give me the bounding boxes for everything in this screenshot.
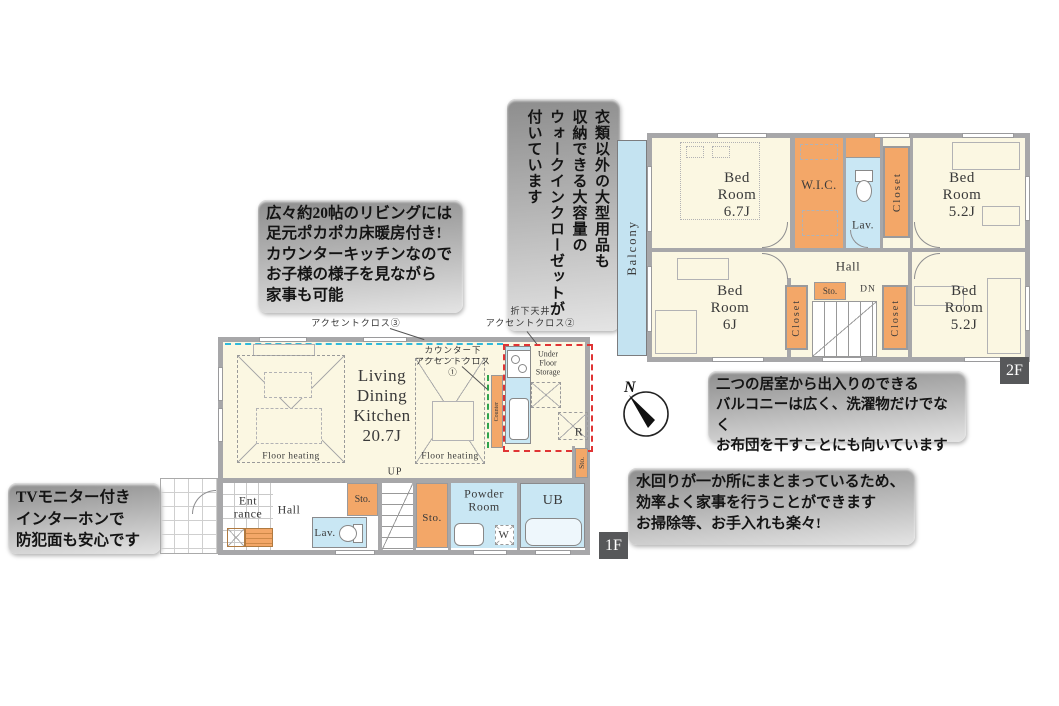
ldk-block: Living Dining Kitchen 20.7J Floor heatin… [218, 337, 590, 483]
balcony: Balcony [617, 140, 647, 356]
door-arc [914, 222, 940, 248]
closet-sw: Closet [785, 285, 808, 350]
stairs-diagonal [382, 483, 413, 550]
storage-2f: Sto. [814, 282, 846, 300]
window [535, 550, 571, 555]
under-floor-storage-box [531, 382, 561, 408]
callout-walk-in-closet: 衣類以外の大型用品も 収納できる大容量の ウォークインクローゼットが 付いていま… [507, 99, 620, 331]
callout-tv-monitor: TVモニター付き インターホンで 防犯面も安心です [8, 483, 161, 554]
refrigerator-box [558, 412, 588, 440]
bedroom-ne-label: Bed Room 5.2J [943, 170, 982, 220]
closet-top-label: Closet [891, 172, 903, 212]
toilet [856, 180, 872, 202]
shoe-cabinet [245, 528, 273, 547]
callout-balcony: 二つの居室から出入りのできる バルコニーは広く、洗濯物だけでなく お布団を干すこ… [708, 371, 966, 442]
dining-table [432, 401, 474, 441]
closet-se-label: Closet [890, 299, 901, 337]
storage-kitchen: Sto. [575, 448, 588, 478]
balcony-door [647, 266, 652, 332]
bedroom-se-label: Bed Room 5.2J [945, 283, 984, 333]
bed [987, 278, 1021, 354]
window [218, 367, 223, 401]
stairs-1f [382, 483, 413, 550]
wall [908, 252, 912, 357]
window [712, 357, 764, 362]
closet-se: Closet [882, 285, 908, 350]
pillow [686, 146, 704, 158]
window [259, 337, 307, 342]
floor1-lower-band: Ent rance Hall Sto. Lav. Sto. [218, 478, 590, 555]
floor-heating-left [237, 355, 345, 463]
lav-1f-label: Lav. [314, 527, 335, 539]
hanger-rod [802, 210, 838, 236]
toilet [339, 525, 357, 542]
wall [652, 248, 1025, 252]
bed [655, 310, 697, 354]
unit-bath-label: UB [543, 493, 563, 509]
floor-heating-right-label: Floor heating [421, 452, 478, 463]
porch [160, 478, 218, 554]
wic-label: W.I.C. [801, 178, 837, 192]
window [363, 337, 407, 342]
shoe-cabinet [227, 528, 245, 547]
stove [507, 350, 531, 378]
storage-hall: Sto. [347, 483, 378, 516]
desk [677, 258, 729, 280]
window [822, 357, 862, 362]
pillow [712, 146, 730, 158]
stairs-down-label: DN [860, 285, 876, 296]
compass: N [612, 374, 676, 440]
compass-north-label: N [623, 379, 637, 396]
burner [511, 355, 520, 364]
powder-room-label: Powder Room [464, 488, 504, 515]
floor-plan-page: 衣類以外の大型用品も 収納できる大容量の ウォークインクローゼットが 付いていま… [0, 0, 1059, 706]
hall-2f-label: Hall [836, 260, 860, 275]
bedroom-nw-label: Bed Room 6.7J [718, 170, 757, 220]
burner [518, 364, 527, 373]
back-door [335, 550, 375, 555]
table [264, 372, 312, 398]
lav-shelf [846, 138, 880, 158]
stairs-up-label: UP [388, 466, 403, 477]
bed [952, 142, 1020, 170]
door-arc [762, 253, 788, 279]
washbasin [454, 523, 484, 546]
compass-needle [629, 395, 655, 428]
window [962, 133, 1014, 138]
accent-cloth-1-label: カウンター下 アクセントクロス① [415, 345, 491, 378]
stairs-2f [812, 301, 877, 357]
accent-cloth-2-label: 折下天井 アクセントクロス② [478, 306, 583, 329]
floor1-plan: Living Dining Kitchen 20.7J Floor heatin… [218, 332, 590, 555]
walk-in-closet [795, 138, 843, 248]
bathtub [525, 518, 582, 546]
hanger-rod [800, 144, 838, 160]
accent-cloth-3-label: アクセントクロス③ [300, 318, 412, 330]
door-arc [762, 222, 788, 248]
bedroom-sw-label: Bed Room 6J [711, 283, 750, 333]
sink [509, 398, 529, 440]
sofa [256, 408, 322, 444]
stairs-diagonal [813, 302, 876, 356]
floor2-plan: Balcony Bed Room 6.7J W.I.C. [617, 133, 1030, 363]
desk [982, 206, 1020, 226]
closet-sw-label: Closet [791, 299, 802, 337]
washer-label: W [498, 529, 511, 541]
window [1025, 286, 1030, 331]
under-floor-storage-label: Under Floor Storage [536, 351, 560, 378]
wall [910, 138, 913, 248]
floor-heating-left-label: Floor heating [262, 452, 319, 463]
callout-utility: 水回りが一か所にまとまっているため、 効率よく家事を行うことができます お掃除等… [628, 468, 915, 545]
window [717, 133, 767, 138]
storage-2f-label: Sto. [823, 286, 837, 296]
window [1025, 176, 1030, 221]
balcony-door [647, 166, 652, 232]
hall-1f-label: Hall [278, 503, 301, 516]
closet-top: Closet [883, 146, 910, 238]
accent-cloth-1-line [487, 375, 489, 448]
storage-hall-label: Sto. [355, 494, 371, 505]
callout-living: 広々約20帖のリビングには 足元ポカポカ床暖房付き! カウンターキッチンなので … [258, 200, 463, 313]
storage-center-label: Sto. [422, 512, 441, 524]
window [218, 408, 223, 442]
floor1-badge: 1F [599, 532, 628, 559]
counter-label: Counter [494, 402, 500, 421]
floor2-main: Bed Room 6.7J W.I.C. Lav. Closet Bed Roo… [647, 133, 1030, 362]
balcony-label: Balcony [625, 220, 640, 276]
storage-kitchen-label: Sto. [577, 457, 586, 469]
refrigerator-label: R [575, 425, 584, 438]
ldk-label: Living Dining Kitchen 20.7J [353, 366, 410, 446]
counter: Counter [491, 375, 503, 448]
entrance-label: Ent rance [234, 495, 262, 522]
floor2-badge: 2F [1000, 357, 1029, 384]
window [874, 133, 910, 138]
window [473, 550, 507, 555]
door-arc [914, 253, 940, 279]
